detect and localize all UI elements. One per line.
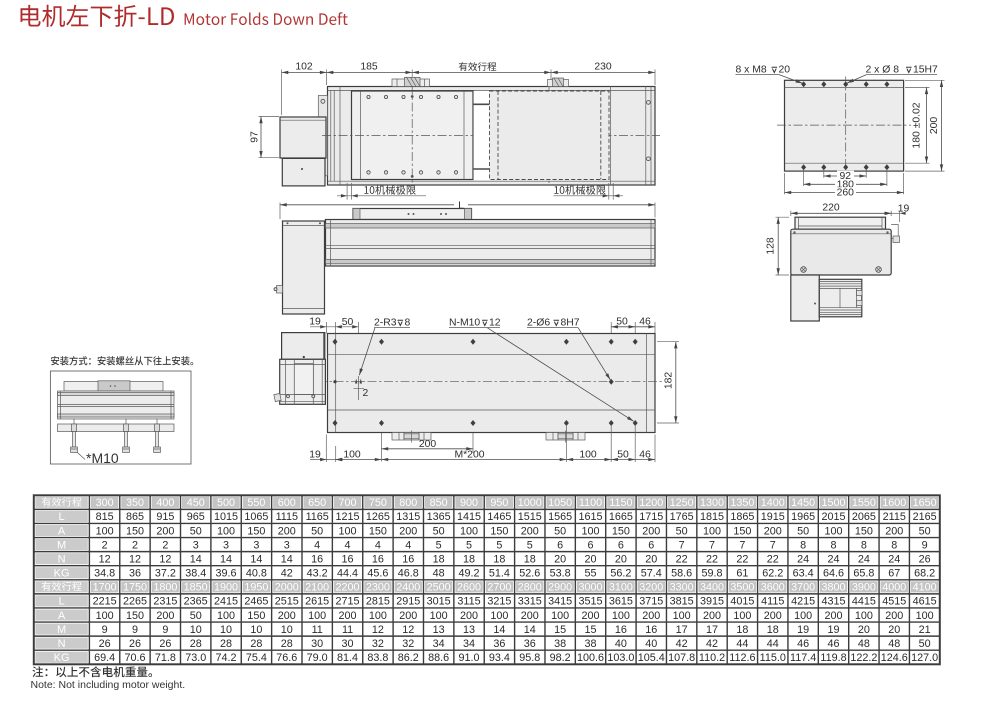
svg-text:83.8: 83.8 [367, 652, 388, 664]
svg-text:55: 55 [585, 568, 597, 580]
svg-text:128: 128 [766, 237, 777, 255]
svg-text:1750: 1750 [123, 582, 147, 594]
svg-text:750: 750 [369, 497, 387, 509]
svg-text:117.4: 117.4 [790, 652, 816, 664]
svg-text:1000: 1000 [518, 497, 542, 509]
svg-text:L: L [59, 596, 65, 608]
svg-text:7: 7 [739, 539, 745, 551]
svg-text:30: 30 [311, 638, 323, 650]
svg-text:3: 3 [193, 539, 199, 551]
svg-text:12: 12 [372, 624, 384, 636]
svg-text:4: 4 [405, 539, 411, 551]
svg-text:40: 40 [645, 638, 657, 650]
svg-text:150: 150 [126, 610, 144, 622]
svg-text:28: 28 [281, 638, 293, 650]
svg-text:3815: 3815 [670, 596, 694, 608]
svg-text:68.2: 68.2 [914, 568, 935, 580]
svg-text:3700: 3700 [791, 582, 815, 594]
svg-text:200: 200 [460, 610, 478, 622]
svg-text:28: 28 [250, 638, 262, 650]
svg-text:865: 865 [126, 511, 144, 523]
svg-text:2 x Ø 8: 2 x Ø 8 [866, 65, 900, 76]
svg-text:26: 26 [129, 638, 141, 650]
svg-text:1350: 1350 [730, 497, 754, 509]
svg-text:100: 100 [582, 525, 600, 537]
svg-text:110.2: 110.2 [699, 652, 725, 664]
svg-text:36: 36 [524, 638, 536, 650]
svg-text:3800: 3800 [821, 582, 845, 594]
svg-text:24: 24 [858, 554, 870, 566]
svg-text:12: 12 [99, 554, 111, 566]
svg-text:1900: 1900 [214, 582, 238, 594]
svg-text:1215: 1215 [336, 511, 360, 523]
svg-text:59.8: 59.8 [702, 568, 723, 580]
svg-text:16: 16 [342, 554, 354, 566]
svg-text:3: 3 [253, 539, 259, 551]
svg-text:14: 14 [190, 554, 202, 566]
svg-text:12: 12 [159, 554, 171, 566]
svg-text:4515: 4515 [882, 596, 906, 608]
svg-text:1665: 1665 [609, 511, 633, 523]
svg-text:10: 10 [250, 624, 262, 636]
svg-text:260: 260 [837, 188, 855, 199]
svg-text:34: 34 [433, 638, 445, 650]
svg-text:N-M10: N-M10 [449, 318, 480, 329]
svg-text:1015: 1015 [214, 511, 238, 523]
svg-text:38.4: 38.4 [185, 568, 206, 580]
svg-text:48: 48 [433, 568, 445, 580]
svg-text:1950: 1950 [244, 582, 268, 594]
svg-text:100: 100 [96, 610, 114, 622]
svg-text:1315: 1315 [396, 511, 420, 523]
svg-text:93.4: 93.4 [489, 652, 510, 664]
svg-text:100: 100 [673, 610, 691, 622]
svg-text:42: 42 [281, 568, 293, 580]
svg-text:105.4: 105.4 [638, 652, 665, 664]
svg-text:150: 150 [855, 525, 873, 537]
svg-text:6: 6 [588, 539, 594, 551]
svg-text:79.0: 79.0 [307, 652, 328, 664]
svg-text:15: 15 [554, 624, 566, 636]
svg-text:50: 50 [676, 525, 688, 537]
svg-text:2265: 2265 [123, 596, 147, 608]
svg-text:1050: 1050 [548, 497, 572, 509]
svg-text:200: 200 [521, 525, 539, 537]
svg-text:3915: 3915 [700, 596, 724, 608]
svg-text:26: 26 [99, 638, 111, 650]
svg-text:2200: 2200 [336, 582, 360, 594]
svg-text:42: 42 [706, 638, 718, 650]
svg-text:M: M [57, 539, 66, 551]
svg-text:200: 200 [764, 610, 782, 622]
svg-text:4415: 4415 [852, 596, 876, 608]
svg-text:3100: 3100 [609, 582, 633, 594]
svg-text:4: 4 [345, 539, 351, 551]
svg-text:1115: 1115 [276, 511, 298, 523]
svg-text:17: 17 [676, 624, 688, 636]
svg-text:2715: 2715 [336, 596, 360, 608]
svg-text:22: 22 [706, 554, 718, 566]
svg-text:18: 18 [767, 624, 779, 636]
svg-text:200: 200 [156, 610, 174, 622]
svg-text:3600: 3600 [761, 582, 785, 594]
svg-text:20: 20 [888, 624, 900, 636]
svg-text:2115: 2115 [883, 511, 906, 523]
svg-text:200: 200 [764, 525, 782, 537]
svg-text:M*200: M*200 [454, 450, 484, 461]
svg-text:550: 550 [247, 497, 265, 509]
svg-text:185: 185 [360, 62, 378, 73]
svg-text:2: 2 [132, 539, 138, 551]
svg-text:200: 200 [278, 525, 296, 537]
svg-text:3215: 3215 [487, 596, 511, 608]
svg-text:8H7: 8H7 [561, 318, 580, 329]
svg-text:300: 300 [96, 497, 114, 509]
svg-text:1600: 1600 [882, 497, 906, 509]
svg-text:3200: 3200 [639, 582, 663, 594]
svg-text:30: 30 [342, 638, 354, 650]
svg-text:11: 11 [342, 624, 353, 636]
svg-text:46.8: 46.8 [398, 568, 419, 580]
svg-text:18: 18 [433, 554, 445, 566]
svg-text:91.0: 91.0 [459, 652, 480, 664]
svg-text:37.2: 37.2 [155, 568, 176, 580]
svg-text:1065: 1065 [244, 511, 268, 523]
svg-text:20: 20 [615, 554, 627, 566]
svg-text:13: 13 [433, 624, 445, 636]
svg-text:76.6: 76.6 [276, 652, 297, 664]
svg-text:11: 11 [312, 624, 323, 636]
svg-text:67: 67 [888, 568, 900, 580]
svg-text:3300: 3300 [670, 582, 694, 594]
svg-text:44.4: 44.4 [337, 568, 358, 580]
svg-text:7: 7 [679, 539, 685, 551]
svg-text:7: 7 [709, 539, 715, 551]
svg-text:100: 100 [733, 610, 751, 622]
svg-text:2: 2 [102, 539, 108, 551]
svg-text:18: 18 [463, 554, 475, 566]
svg-text:24: 24 [888, 554, 900, 566]
svg-text:2065: 2065 [852, 511, 876, 523]
svg-text:9: 9 [162, 624, 168, 636]
svg-text:100: 100 [703, 525, 721, 537]
svg-text:965: 965 [187, 511, 205, 523]
svg-text:3: 3 [284, 539, 290, 551]
svg-text:1500: 1500 [821, 497, 845, 509]
svg-text:200: 200 [339, 610, 357, 622]
svg-text:2-R3: 2-R3 [374, 318, 397, 329]
svg-text:86.2: 86.2 [398, 652, 419, 664]
svg-text:46: 46 [639, 317, 651, 328]
svg-text:32: 32 [402, 638, 414, 650]
svg-text:2515: 2515 [275, 596, 299, 608]
svg-text:500: 500 [217, 497, 235, 509]
svg-text:50: 50 [311, 525, 323, 537]
svg-text:200: 200 [885, 525, 903, 537]
svg-text:200: 200 [642, 525, 660, 537]
svg-text:64.6: 64.6 [823, 568, 844, 580]
svg-text:56.2: 56.2 [610, 568, 631, 580]
svg-text:182: 182 [664, 372, 675, 390]
svg-text:850: 850 [430, 497, 448, 509]
svg-text:88.6: 88.6 [428, 652, 449, 664]
svg-text:N: N [58, 638, 66, 650]
svg-text:50: 50 [919, 525, 931, 537]
svg-text:5: 5 [496, 539, 502, 551]
svg-text:200: 200 [521, 610, 539, 622]
svg-text:81.4: 81.4 [337, 652, 358, 664]
svg-text:1915: 1915 [761, 511, 785, 523]
svg-text:10: 10 [220, 624, 232, 636]
svg-text:119.8: 119.8 [820, 652, 846, 664]
svg-text:14: 14 [250, 554, 262, 566]
svg-text:2465: 2465 [244, 596, 268, 608]
svg-text:KG: KG [54, 652, 70, 664]
svg-text:16: 16 [402, 554, 414, 566]
svg-text:1300: 1300 [700, 497, 724, 509]
svg-text:38: 38 [554, 638, 566, 650]
svg-text:44: 44 [736, 638, 748, 650]
svg-text:19: 19 [898, 204, 910, 215]
svg-text:2: 2 [162, 539, 168, 551]
svg-text:50: 50 [433, 525, 445, 537]
svg-text:A: A [58, 610, 66, 622]
svg-text:100: 100 [490, 610, 508, 622]
svg-text:1715: 1715 [639, 511, 663, 523]
svg-text:3615: 3615 [609, 596, 633, 608]
svg-text:815: 815 [96, 511, 114, 523]
svg-text:15: 15 [585, 624, 597, 636]
svg-text:800: 800 [399, 497, 417, 509]
svg-text:24: 24 [827, 554, 839, 566]
svg-text:12: 12 [489, 318, 501, 329]
svg-text:20: 20 [858, 624, 870, 636]
svg-text:45.6: 45.6 [367, 568, 388, 580]
svg-text:1265: 1265 [366, 511, 390, 523]
svg-text:1400: 1400 [761, 497, 785, 509]
svg-text:1150: 1150 [609, 497, 632, 509]
svg-text:61: 61 [736, 568, 748, 580]
svg-text:21: 21 [919, 624, 931, 636]
svg-text:50: 50 [190, 525, 202, 537]
svg-text:74.2: 74.2 [216, 652, 237, 664]
svg-text:100: 100 [96, 525, 114, 537]
svg-text:100: 100 [308, 610, 326, 622]
svg-text:52.6: 52.6 [519, 568, 540, 580]
svg-text:2215: 2215 [93, 596, 117, 608]
svg-text:5: 5 [436, 539, 442, 551]
svg-text:2800: 2800 [518, 582, 542, 594]
svg-text:1465: 1465 [487, 511, 511, 523]
svg-text:2600: 2600 [457, 582, 481, 594]
svg-text:4615: 4615 [913, 596, 937, 608]
svg-text:2300: 2300 [366, 582, 390, 594]
svg-text:46: 46 [639, 449, 651, 460]
svg-text:95.8: 95.8 [519, 652, 540, 664]
svg-text:3500: 3500 [730, 582, 754, 594]
svg-text:2815: 2815 [366, 596, 390, 608]
svg-text:19: 19 [827, 624, 839, 636]
svg-text:65.8: 65.8 [853, 568, 874, 580]
svg-text:12: 12 [129, 554, 141, 566]
svg-text:50: 50 [554, 525, 566, 537]
svg-text:1965: 1965 [791, 511, 815, 523]
svg-text:6: 6 [618, 539, 624, 551]
svg-text:46: 46 [827, 638, 839, 650]
svg-text:100: 100 [824, 525, 842, 537]
svg-text:100: 100 [339, 525, 357, 537]
svg-text:3: 3 [223, 539, 229, 551]
svg-text:1850: 1850 [184, 582, 208, 594]
svg-text:16: 16 [645, 624, 657, 636]
svg-text:3515: 3515 [579, 596, 603, 608]
svg-text:200: 200 [929, 117, 940, 135]
svg-text:69.4: 69.4 [94, 652, 115, 664]
svg-text:32: 32 [372, 638, 384, 650]
svg-text:70.6: 70.6 [124, 652, 145, 664]
svg-text:100: 100 [612, 610, 630, 622]
svg-text:5: 5 [466, 539, 472, 551]
svg-text:180 ±0.02: 180 ±0.02 [912, 102, 923, 148]
svg-text:3400: 3400 [700, 582, 724, 594]
svg-text:8: 8 [891, 539, 897, 551]
svg-text:400: 400 [156, 497, 174, 509]
svg-text:9: 9 [922, 539, 928, 551]
svg-text:58.6: 58.6 [671, 568, 692, 580]
svg-text:9: 9 [102, 624, 108, 636]
svg-text:1450: 1450 [791, 497, 815, 509]
svg-text:63.4: 63.4 [793, 568, 814, 580]
svg-text:34.8: 34.8 [94, 568, 115, 580]
svg-text:100: 100 [460, 525, 478, 537]
svg-text:19: 19 [309, 316, 321, 327]
svg-text:102: 102 [295, 62, 313, 73]
svg-text:38: 38 [585, 638, 597, 650]
svg-text:2900: 2900 [548, 582, 572, 594]
svg-text:18: 18 [736, 624, 748, 636]
svg-text:200: 200 [399, 610, 417, 622]
svg-text:1515: 1515 [518, 511, 542, 523]
svg-text:50: 50 [797, 525, 809, 537]
svg-text:36: 36 [493, 638, 505, 650]
svg-text:200: 200 [399, 525, 417, 537]
svg-text:150: 150 [490, 525, 508, 537]
svg-text:19: 19 [309, 449, 321, 460]
svg-text:230: 230 [594, 62, 612, 73]
svg-text:100: 100 [369, 610, 387, 622]
svg-text:N: N [58, 554, 66, 566]
svg-text:14: 14 [220, 554, 232, 566]
svg-text:1100: 1100 [579, 497, 602, 509]
svg-text:200: 200 [703, 610, 721, 622]
svg-text:150: 150 [247, 525, 265, 537]
svg-text:8: 8 [800, 539, 806, 551]
svg-text:1700: 1700 [93, 582, 117, 594]
svg-text:34: 34 [463, 638, 475, 650]
svg-text:20: 20 [585, 554, 597, 566]
svg-text:2700: 2700 [487, 582, 511, 594]
svg-text:7: 7 [770, 539, 776, 551]
svg-text:8: 8 [405, 318, 411, 329]
svg-text:62.2: 62.2 [762, 568, 783, 580]
svg-text:200: 200 [885, 610, 903, 622]
svg-text:16: 16 [372, 554, 384, 566]
svg-text:50: 50 [617, 449, 629, 460]
svg-text:20: 20 [779, 65, 791, 76]
svg-text:15H7: 15H7 [913, 65, 938, 76]
svg-text:22: 22 [676, 554, 688, 566]
svg-text:200: 200 [419, 439, 437, 450]
svg-text:4315: 4315 [821, 596, 845, 608]
svg-text:350: 350 [126, 497, 144, 509]
svg-text:1250: 1250 [670, 497, 694, 509]
svg-text:112.6: 112.6 [729, 652, 755, 664]
svg-text:KG: KG [54, 568, 70, 580]
svg-text:13: 13 [463, 624, 475, 636]
svg-text:50: 50 [190, 610, 202, 622]
svg-text:14: 14 [281, 554, 293, 566]
svg-text:1200: 1200 [639, 497, 663, 509]
svg-text:100: 100 [430, 610, 448, 622]
svg-text:14: 14 [493, 624, 505, 636]
svg-text:39.6: 39.6 [216, 568, 237, 580]
svg-text:150: 150 [247, 610, 265, 622]
svg-text:2000: 2000 [275, 582, 299, 594]
svg-text:4015: 4015 [730, 596, 754, 608]
svg-text:2615: 2615 [305, 596, 329, 608]
svg-text:2: 2 [363, 388, 369, 399]
svg-text:2400: 2400 [396, 582, 420, 594]
svg-text:16: 16 [615, 624, 627, 636]
svg-text:6: 6 [648, 539, 654, 551]
svg-text:950: 950 [490, 497, 508, 509]
svg-text:4115: 4115 [761, 596, 784, 608]
svg-text:A: A [58, 525, 66, 537]
svg-text:2315: 2315 [153, 596, 177, 608]
svg-text:2415: 2415 [214, 596, 238, 608]
svg-text:22: 22 [736, 554, 748, 566]
svg-text:L: L [59, 511, 65, 523]
svg-text:1765: 1765 [670, 511, 694, 523]
svg-text:200: 200 [582, 610, 600, 622]
svg-text:2165: 2165 [913, 511, 937, 523]
svg-text:24: 24 [797, 554, 809, 566]
svg-text:103.0: 103.0 [607, 652, 634, 664]
svg-text:3000: 3000 [579, 582, 603, 594]
svg-text:100: 100 [217, 525, 235, 537]
svg-text:51.4: 51.4 [489, 568, 510, 580]
svg-text:8: 8 [830, 539, 836, 551]
svg-text:73.0: 73.0 [185, 652, 206, 664]
svg-text:97: 97 [250, 131, 261, 143]
svg-text:4215: 4215 [791, 596, 815, 608]
svg-text:10: 10 [281, 624, 293, 636]
svg-text:9: 9 [132, 624, 138, 636]
svg-text:46: 46 [797, 638, 809, 650]
svg-text:900: 900 [460, 497, 478, 509]
svg-text:3115: 3115 [457, 596, 480, 608]
svg-text:19: 19 [797, 624, 809, 636]
svg-text:1565: 1565 [548, 511, 572, 523]
svg-text:1415: 1415 [457, 511, 481, 523]
svg-text:20: 20 [645, 554, 657, 566]
svg-text:1615: 1615 [579, 511, 603, 523]
svg-text:124.6: 124.6 [881, 652, 908, 664]
svg-text:150: 150 [369, 525, 387, 537]
svg-text:200: 200 [642, 610, 660, 622]
svg-text:3900: 3900 [852, 582, 876, 594]
svg-text:M: M [57, 624, 66, 636]
